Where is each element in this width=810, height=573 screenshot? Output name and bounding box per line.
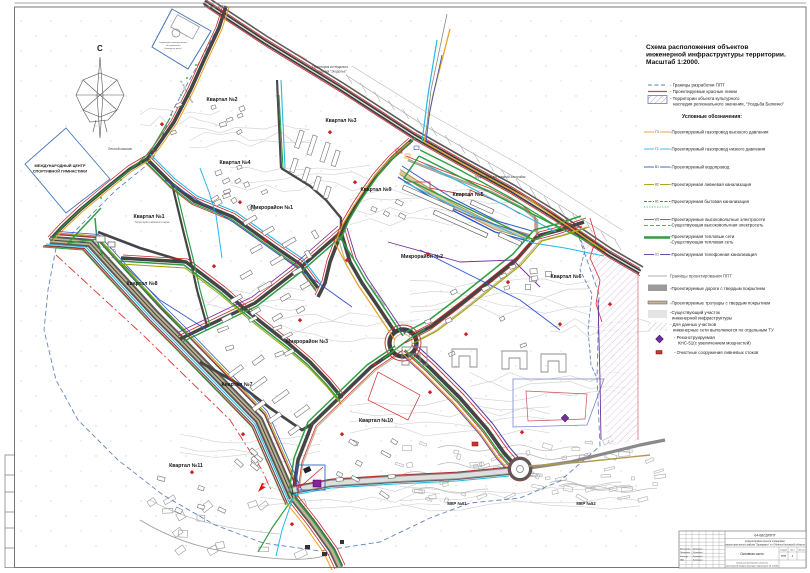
svg-text:Масштаб 1:2000.: Масштаб 1:2000. [646, 58, 700, 66]
svg-text:-Проектируемый газопровод низк: -Проектируемый газопровод низкого давлен… [670, 147, 766, 152]
svg-text:С: С [97, 44, 103, 53]
svg-text:-Проектируемый водопровод: -Проектируемый водопровод [670, 165, 730, 170]
svg-text:Условные обозначения:: Условные обозначения: [682, 113, 742, 120]
svg-text:(пожарное депо): (пожарное депо) [165, 48, 182, 50]
svg-text:ППТ: ППТ [781, 554, 787, 558]
svg-text:Лист: Лист [790, 550, 794, 552]
svg-text:инженерные сети выполняются по: инженерные сети выполняются по отдельным… [673, 328, 774, 333]
svg-text:Выполнил: Выполнил [680, 549, 691, 551]
svg-text:территории жилого района "Заов: территории жилого района "Заовражье" в г… [725, 544, 806, 547]
svg-text:инженерной инфраструктуры терр: инженерной инфраструктуры территории. [646, 51, 786, 59]
svg-text:поселка "Экодолье": поселка "Экодолье" [317, 70, 346, 74]
svg-text:-Проектируемая телефонная кана: -Проектируемая телефонная канализация [670, 252, 757, 257]
svg-text:- Очистные сооружения ливневых: - Очистные сооружения ливневых стоков [674, 350, 759, 355]
svg-text:Квартал №2: Квартал №2 [206, 97, 237, 103]
svg-text:Проверил: Проверил [680, 552, 691, 554]
svg-text:МЕЖДУНАРОДНЫЙ ЦЕНТР: МЕЖДУНАРОДНЫЙ ЦЕНТР [35, 164, 86, 168]
svg-text:Кузнецов: Кузнецов [693, 552, 703, 554]
svg-text:-Проектируемая ливневая канали: -Проектируемая ливневая канализация [670, 182, 752, 187]
svg-text:МКР №51: МКР №51 [447, 501, 467, 506]
svg-text:В1: В1 [655, 165, 659, 169]
svg-text:МКР №52: МКР №52 [576, 501, 596, 506]
svg-text:- Границы разработки ППТ: - Границы разработки ППТ [670, 83, 725, 88]
svg-text:Квартал №7: Квартал №7 [221, 382, 252, 388]
svg-text:- Проектируемые красные линии: - Проектируемые красные линии [670, 89, 738, 94]
svg-text:- Территории объекта культурно: - Территории объекта культурного [670, 96, 740, 101]
svg-text:К2: К2 [655, 183, 659, 187]
svg-text:Территория коттеджного: Территория коттеджного [312, 65, 349, 69]
svg-text:Микрорайон №1: Микрорайон №1 [251, 204, 293, 211]
svg-text:Кузнецов: Кузнецов [693, 549, 703, 551]
svg-text:Территория районного парка: Территория районного парка [135, 220, 170, 224]
svg-text:Территория коммунального: Территория коммунального [159, 42, 188, 44]
svg-text:Н.контр.: Н.контр. [680, 556, 689, 558]
svg-text:Г3: Г3 [655, 130, 659, 134]
svg-text:СПОРТИВНОЙ ГИМНАСТИКИ: СПОРТИВНОЙ ГИМНАСТИКИ [33, 170, 88, 174]
svg-text:Кузнецов: Кузнецов [693, 560, 703, 562]
svg-text:Стадия: Стадия [780, 550, 787, 552]
svg-text:Листов: Листов [798, 550, 805, 552]
svg-text:Схема расположения объектов: Схема расположения объектов [646, 43, 748, 51]
svg-text:Микрорайон №2: Микрорайон №2 [401, 253, 443, 260]
svg-text:-Проектируемые дороги с тверды: -Проектируемые дороги с твердым покрытие… [670, 286, 765, 291]
svg-text:Микрорайон №3: Микрорайон №3 [286, 338, 328, 345]
svg-text:-Проектируемые тротуары с твер: -Проектируемые тротуары с твердым покрыт… [670, 301, 770, 306]
svg-text:Квартал №4: Квартал №4 [219, 160, 250, 166]
svg-text:-Существующая тепловая сеть: -Существующая тепловая сеть [670, 240, 734, 245]
svg-text:04-08/15/ППТ: 04-08/15/ППТ [754, 534, 775, 538]
svg-text:ГАП: ГАП [680, 559, 684, 562]
svg-text:-Проектируемый газопровод высо: -Проектируемый газопровод высокого давле… [670, 130, 769, 135]
svg-text:Границы проектирования ППТ: Границы проектирования ППТ [670, 274, 732, 279]
svg-text:обслуживания: обслуживания [166, 45, 181, 47]
svg-text:-Проектируемая тепловые сети: -Проектируемая тепловые сети [670, 234, 735, 239]
svg-text:Кузнецов: Кузнецов [693, 556, 703, 558]
svg-text:Квартал №6: Квартал №6 [550, 274, 581, 280]
svg-text:Основная часть: Основная часть [740, 552, 764, 556]
svg-text:Территория коттеджной застройк: Территория коттеджной застройки [475, 175, 526, 179]
svg-text:Квартал №10: Квартал №10 [359, 418, 393, 424]
svg-text:Квартал №5: Квартал №5 [452, 192, 483, 198]
svg-text:Лесной массив: Лесной массив [108, 147, 132, 151]
svg-text:- Для данных участков: - Для данных участков [670, 322, 717, 327]
svg-text:Квартал №11: Квартал №11 [169, 463, 203, 469]
svg-text:инженерной инфраструктуры терр: инженерной инфраструктуры территории. М … [726, 565, 779, 568]
svg-text:-Существующий участок: -Существующий участок [670, 310, 720, 315]
svg-text:-Проектируемые высоковольтные: -Проектируемые высоковольтные электросет… [670, 217, 766, 222]
svg-text:-Проектируемая бытовая канализ: -Проектируемая бытовая канализация [670, 199, 750, 204]
svg-text:КНС-51(с увеличением мощностей: КНС-51(с увеличением мощностей) [678, 341, 751, 346]
svg-text:Г1: Г1 [655, 147, 659, 151]
svg-text:- Реконструируемая: - Реконструируемая [674, 335, 715, 340]
svg-text:V1: V1 [655, 253, 659, 257]
svg-text:Квартал №9: Квартал №9 [360, 187, 391, 193]
svg-text:Квартал №3: Квартал №3 [325, 118, 356, 124]
svg-text:инженерной инфраструктуры: инженерной инфраструктуры [672, 316, 732, 321]
svg-text:W2: W2 [655, 218, 660, 222]
svg-text:-Существующая высоковольтная э: -Существующая высоковольтная электросеть [670, 223, 764, 228]
svg-text:Схема расположения объектов: Схема расположения объектов [736, 563, 769, 565]
svg-text:наследия регионального значени: наследия регионального значения, "Усадьб… [673, 102, 785, 107]
svg-text:Квартал №1: Квартал №1 [133, 214, 164, 220]
svg-text:К1: К1 [655, 200, 659, 204]
svg-text:Квартал №8: Квартал №8 [126, 281, 157, 287]
